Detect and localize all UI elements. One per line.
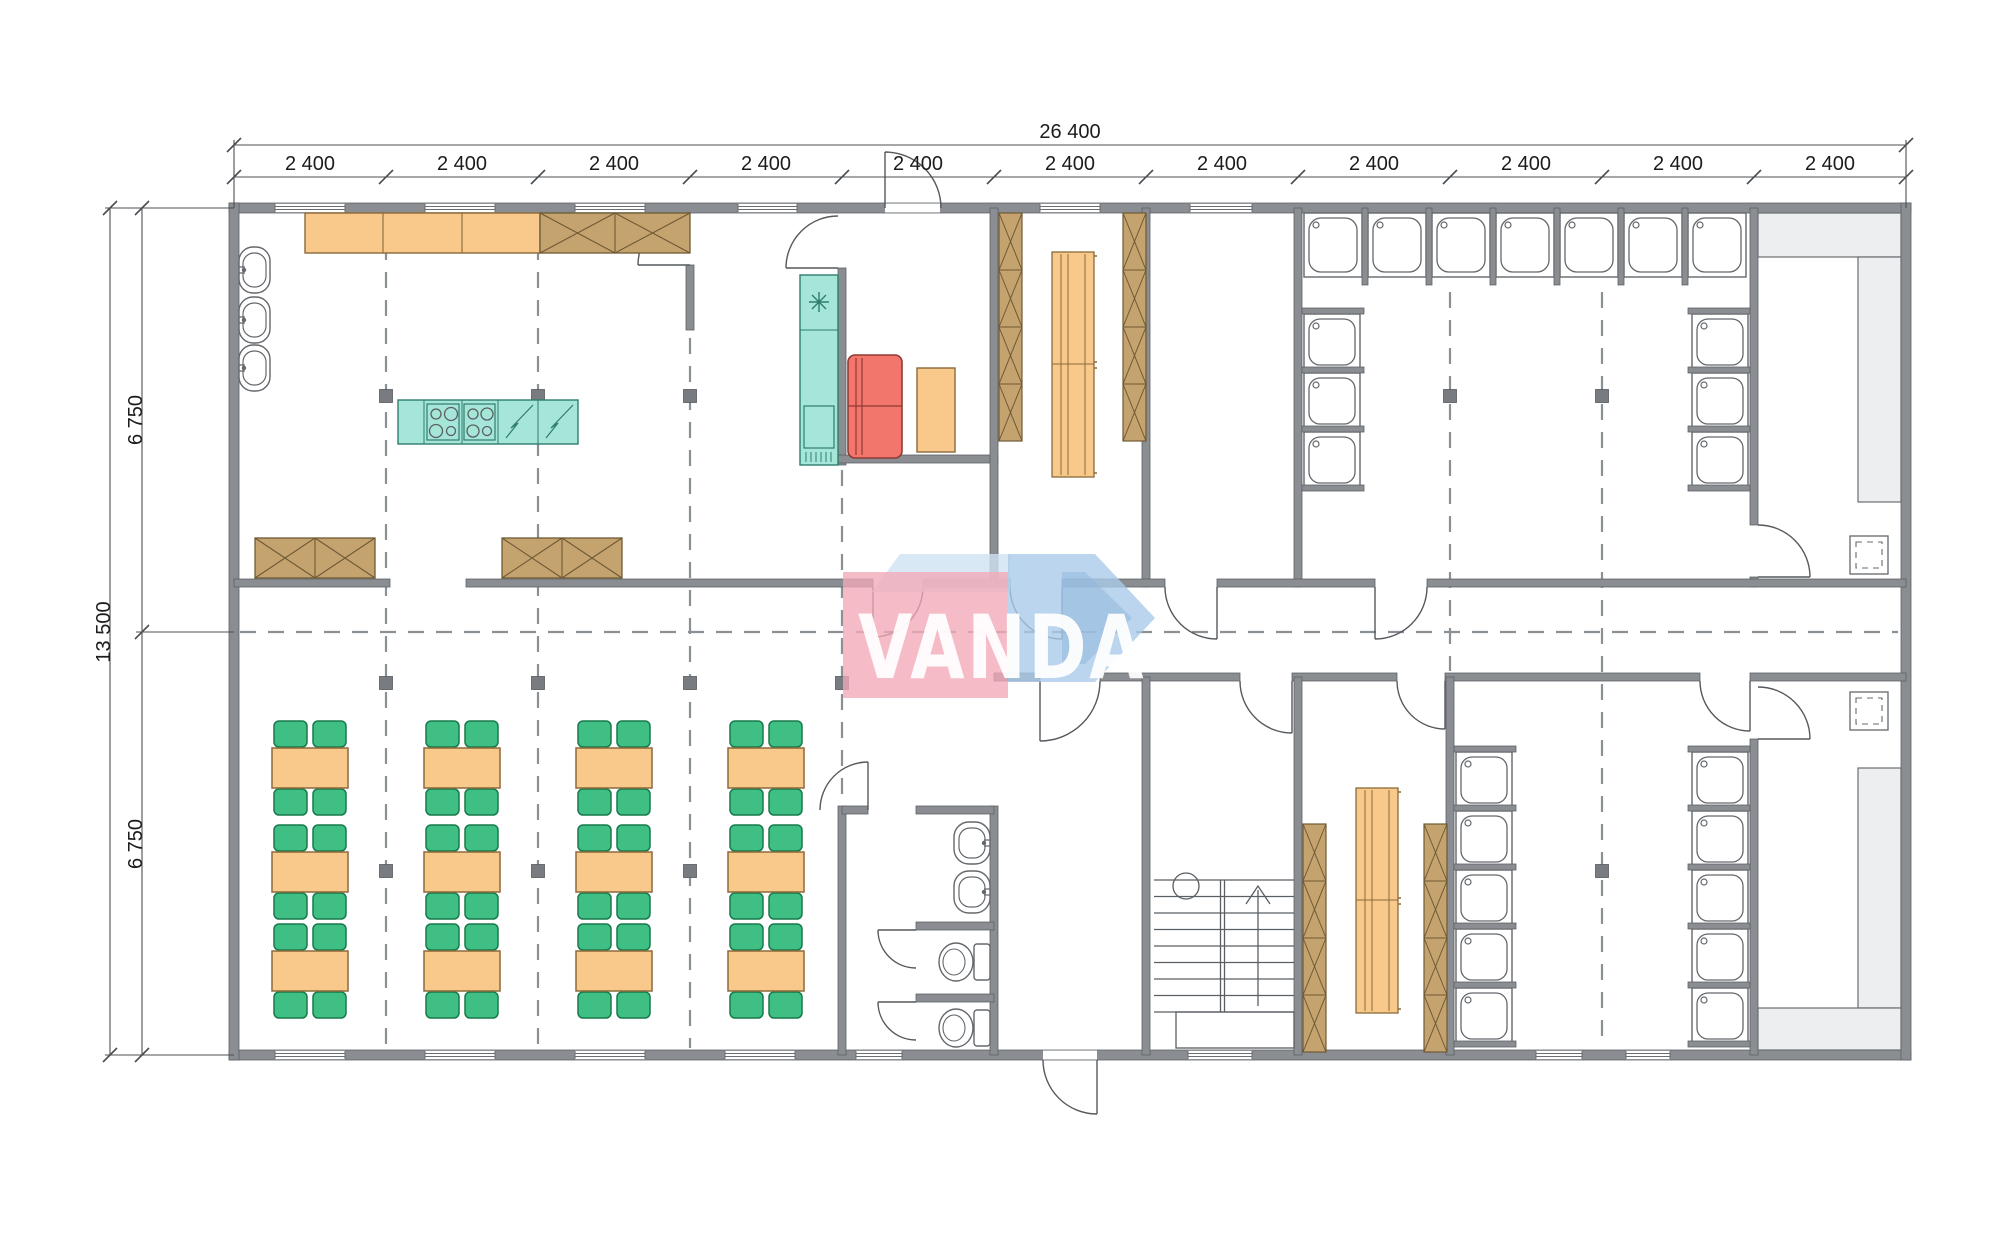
toilet-room bbox=[939, 822, 990, 1047]
logo-text: VANDA bbox=[858, 596, 1146, 699]
wardrobe bbox=[999, 213, 1022, 441]
dim-bay: 2 400 bbox=[1653, 153, 1703, 175]
dim-bay: 2 400 bbox=[1349, 153, 1399, 175]
wardrobe bbox=[1303, 824, 1326, 1052]
wardrobe bbox=[1424, 824, 1447, 1052]
dim-bay: 2 400 bbox=[893, 153, 943, 175]
dimension-chain-top: 26 400 2 400 2 400 2 400 2 400 2 400 2 4… bbox=[227, 121, 1913, 208]
bedroom1 bbox=[999, 213, 1146, 477]
sauna-bottom bbox=[1758, 692, 1901, 1050]
hall-side-table bbox=[917, 368, 955, 452]
dim-total-width: 26 400 bbox=[1039, 121, 1100, 143]
kitchen-lower-cabinets bbox=[255, 538, 622, 578]
bunk-bed bbox=[1052, 252, 1097, 477]
watermark-logo: VANDA bbox=[843, 554, 1155, 699]
dimension-chain-left: 13 500 6 750 6 750 bbox=[93, 201, 234, 1062]
dim-total-height: 13 500 bbox=[93, 601, 115, 662]
wardrobe bbox=[1123, 213, 1146, 441]
kitchen-counter bbox=[305, 213, 540, 253]
shower-room-top bbox=[1302, 208, 1750, 491]
pantry-tall-unit bbox=[800, 275, 838, 465]
dim-half-height: 6 750 bbox=[125, 395, 147, 445]
sauna-top bbox=[1758, 213, 1901, 574]
dim-bay: 2 400 bbox=[1501, 153, 1551, 175]
fridge bbox=[848, 355, 902, 458]
dim-bay: 2 400 bbox=[1805, 153, 1855, 175]
floor-plan-page: 26 400 2 400 2 400 2 400 2 400 2 400 2 4… bbox=[0, 0, 2000, 1235]
kitchen bbox=[239, 213, 690, 578]
dim-bay: 2 400 bbox=[437, 153, 487, 175]
kitchen-sinks bbox=[239, 247, 270, 391]
bunk-bed bbox=[1356, 788, 1401, 1013]
dim-bay: 2 400 bbox=[589, 153, 639, 175]
staircase bbox=[1154, 873, 1294, 1048]
dim-bay: 2 400 bbox=[285, 153, 335, 175]
floor-plan-drawing: 26 400 2 400 2 400 2 400 2 400 2 400 2 4… bbox=[0, 0, 2000, 1235]
kitchen-island bbox=[398, 400, 578, 444]
kitchen-wall-cabinet bbox=[540, 213, 690, 253]
dim-bay: 2 400 bbox=[741, 153, 791, 175]
bedroom2 bbox=[1303, 788, 1447, 1052]
dim-bay: 2 400 bbox=[1045, 153, 1095, 175]
dim-half-height: 6 750 bbox=[125, 819, 147, 869]
dim-bay: 2 400 bbox=[1197, 153, 1247, 175]
